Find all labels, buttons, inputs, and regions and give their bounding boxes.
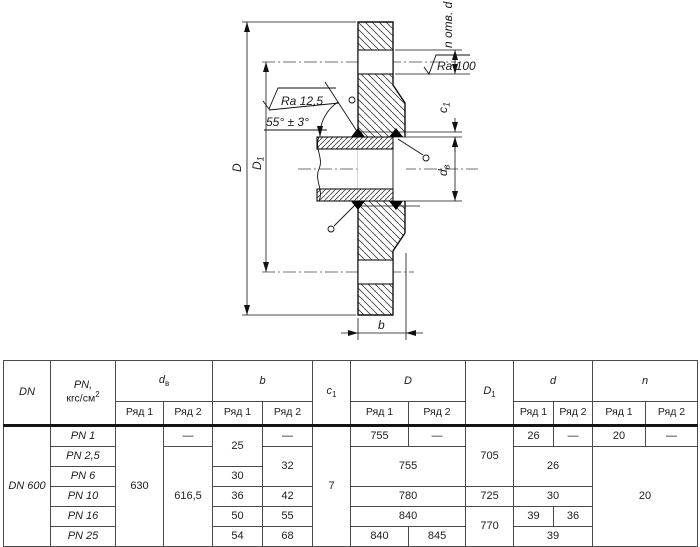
- flange-body: [357, 22, 406, 315]
- cell-n1-pn1: 20: [593, 426, 646, 447]
- cell-D2c-pn1: —: [409, 426, 466, 447]
- dimension-dv: dв: [436, 137, 458, 201]
- dim-b-label: b: [378, 318, 385, 332]
- header-dn: DN: [4, 361, 51, 426]
- dim-D1-label: D1: [250, 156, 266, 170]
- gost-flange-sheet: 55° ± 3° Ra 12,5 Ra 100 D D1 n отв. d: [0, 0, 700, 547]
- header-dv-row2: Ряд 2: [164, 402, 213, 426]
- cell-b2-pn25-6: 32: [263, 447, 313, 487]
- dim-c1-label: c1: [436, 102, 452, 113]
- bolt-hole-top: [358, 50, 393, 74]
- header-b: b: [213, 361, 313, 402]
- cell-D-pn16: 840: [351, 507, 466, 527]
- weld-around-symbol-right: [423, 155, 429, 161]
- header-dv: dв: [116, 361, 213, 402]
- cell-d-pn10: 30: [514, 487, 593, 507]
- cell-n-rest: 20: [593, 447, 698, 547]
- cell-D1c-pn1: 755: [351, 426, 409, 447]
- cell-dv-row1: 630: [116, 426, 164, 547]
- cell-pn-5: PN 16: [51, 507, 116, 527]
- cell-pn-6: PN 25: [51, 527, 116, 547]
- header-d-row2: Ряд 2: [554, 402, 593, 426]
- cell-b2-pn1: —: [263, 426, 313, 447]
- cell-D1-pn16-25: 770: [466, 507, 514, 547]
- cell-dn: DN 600: [4, 426, 51, 547]
- cell-D1-pn10: 725: [466, 487, 514, 507]
- header-b-row2: Ряд 2: [263, 402, 313, 426]
- cell-d1-pn16: 39: [514, 507, 554, 527]
- cell-b1-pn6: 30: [213, 467, 263, 487]
- weld-around-symbol-left: [328, 226, 334, 232]
- angle-arrowhead: [317, 126, 323, 137]
- dimension-D1: D1: [250, 62, 269, 272]
- cell-D-pn10: 780: [351, 487, 466, 507]
- cell-b2-pn16: 55: [263, 507, 313, 527]
- cell-D1-pn1-6: 705: [466, 426, 514, 487]
- header-c1: c1: [313, 361, 351, 426]
- header-d-row1: Ряд 1: [514, 402, 554, 426]
- roughness-ra100: Ra 100: [424, 55, 476, 74]
- bevel-angle-label: 55° ± 3°: [266, 115, 309, 129]
- flange-dimensions-table: DN PN, кгс/см2 dв b c1 D D1 d n Ряд 1 Ря…: [3, 360, 698, 547]
- cell-b1-pn25: 54: [213, 527, 263, 547]
- dimension-D: D: [230, 22, 356, 315]
- cell-pn-3: PN 6: [51, 467, 116, 487]
- cell-d-pn25: 39: [514, 527, 593, 547]
- cell-D-pn25-6: 755: [351, 447, 466, 487]
- header-b-row1: Ряд 1: [213, 402, 263, 426]
- cell-n2-pn1: —: [646, 426, 698, 447]
- cell-b1-pn1: 25: [213, 426, 263, 467]
- header-D-row1: Ряд 1: [351, 402, 409, 426]
- header-D-row2: Ряд 2: [409, 402, 466, 426]
- cell-d1-pn1: 26: [514, 426, 554, 447]
- cell-pn-1: PN 1: [51, 426, 116, 447]
- flange-section-drawing: 55° ± 3° Ra 12,5 Ra 100 D D1 n отв. d: [0, 0, 700, 360]
- cell-d2-pn16: 36: [554, 507, 593, 527]
- cell-d2-pn1: —: [554, 426, 593, 447]
- roughness-ra125: Ra 12,5: [263, 88, 339, 110]
- header-D: D: [351, 361, 466, 402]
- header-pn: PN, кгс/см2: [51, 361, 116, 426]
- header-n-row2: Ряд 2: [646, 402, 698, 426]
- cell-b1-pn16: 50: [213, 507, 263, 527]
- dim-n-holes-label: n отв. d: [441, 1, 455, 48]
- header-dv-row1: Ряд 1: [116, 402, 164, 426]
- cell-D1c-pn25: 840: [351, 527, 409, 547]
- cell-dv-row2-pn1: —: [164, 426, 213, 447]
- cell-D2c-pn25: 845: [409, 527, 466, 547]
- roughness-ra125-label: Ra 12,5: [281, 94, 323, 108]
- dim-D-label: D: [230, 163, 244, 172]
- header-D1: D1: [466, 361, 514, 426]
- dim-dv-label: dв: [436, 164, 452, 176]
- header-n: n: [593, 361, 698, 402]
- cell-b2-pn10: 42: [263, 487, 313, 507]
- weld-around-symbol-bevel: [349, 97, 355, 103]
- bolt-hole-bottom: [358, 260, 393, 284]
- cell-b1-pn10: 36: [213, 487, 263, 507]
- cell-d-pn25-6: 26: [514, 447, 593, 487]
- pipe-wall-bottom: [317, 189, 393, 201]
- cell-pn-4: PN 10: [51, 487, 116, 507]
- cell-b2-pn25: 68: [263, 527, 313, 547]
- pipe-wall-top: [317, 137, 393, 149]
- cell-c1: 7: [313, 426, 351, 547]
- header-d: d: [514, 361, 593, 402]
- cell-pn-2: PN 2,5: [51, 447, 116, 467]
- cell-dv-row2: 616,5: [164, 447, 213, 547]
- header-n-row1: Ряд 1: [593, 402, 646, 426]
